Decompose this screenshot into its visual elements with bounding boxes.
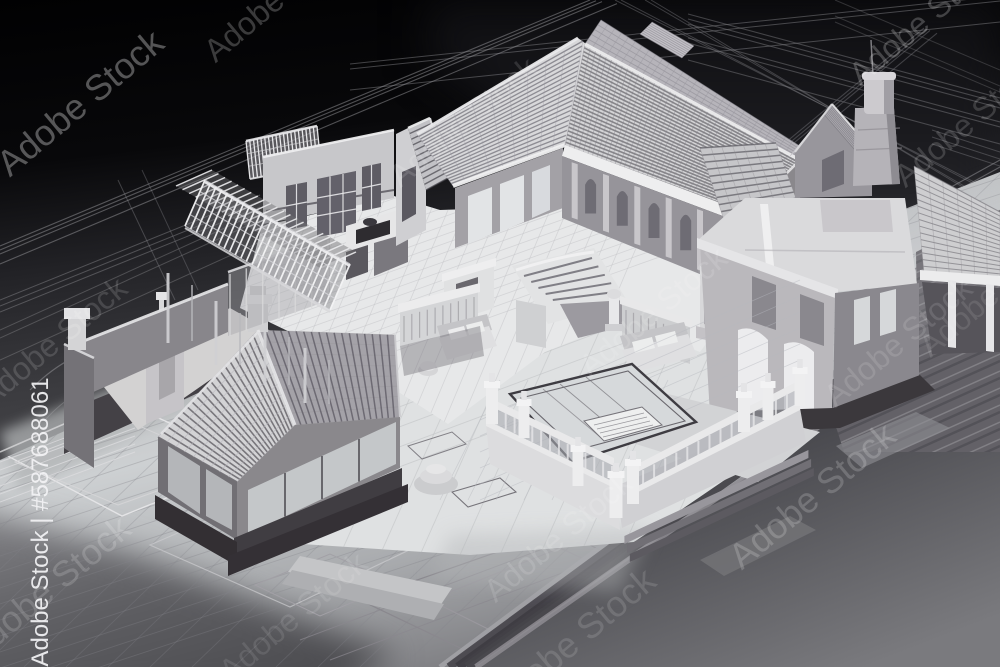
svg-text:Adobe Stock | #587688061: Adobe Stock | #587688061 [27,377,54,666]
